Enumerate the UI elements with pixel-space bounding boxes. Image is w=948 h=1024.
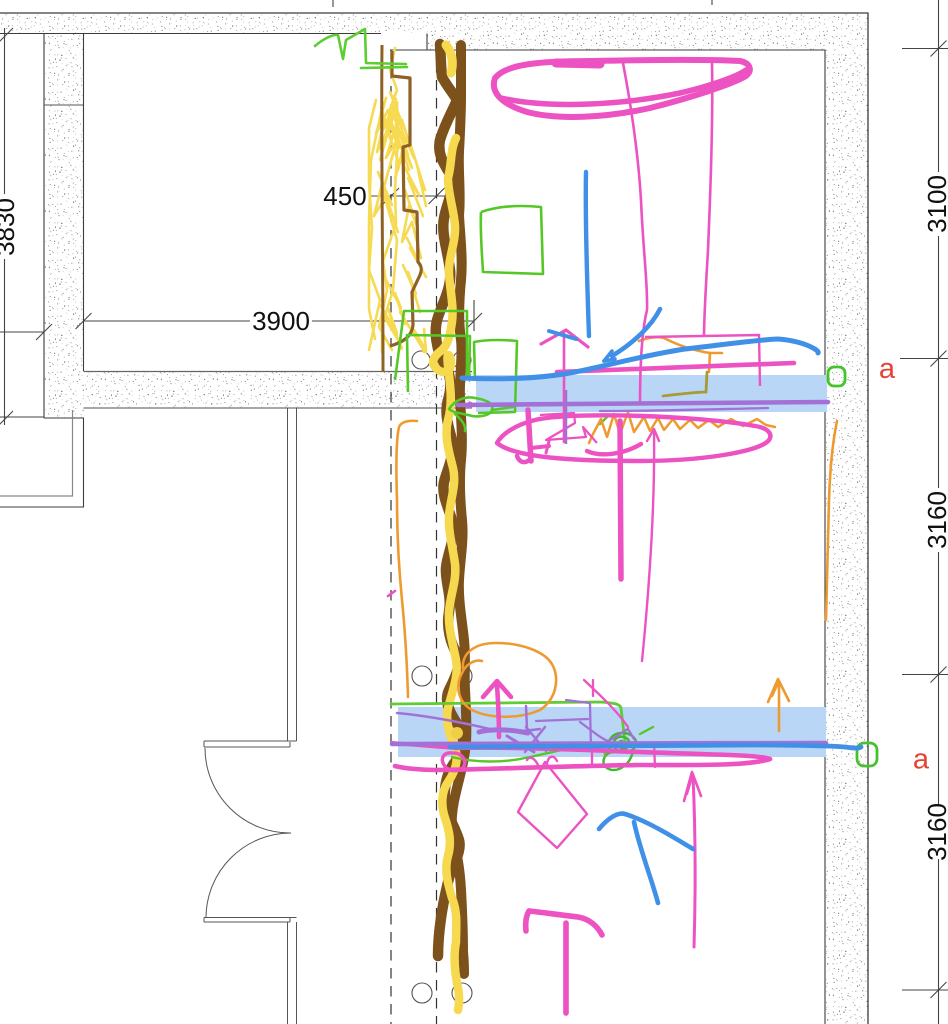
svg-text:3160: 3160 bbox=[922, 803, 948, 861]
svg-text:3830: 3830 bbox=[0, 198, 20, 256]
svg-text:3900: 3900 bbox=[252, 306, 310, 336]
svg-text:a: a bbox=[913, 744, 930, 776]
svg-text:3160: 3160 bbox=[922, 491, 948, 549]
svg-text:450: 450 bbox=[323, 181, 366, 211]
svg-text:3100: 3100 bbox=[922, 175, 948, 233]
svg-text:a: a bbox=[879, 353, 896, 385]
